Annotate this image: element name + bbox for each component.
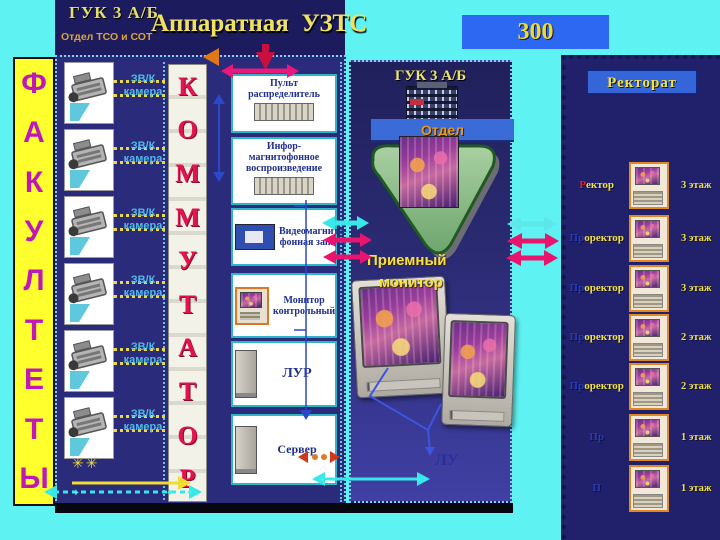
rectorate-row: Проректор 3 этаж (566, 215, 720, 261)
floor-label: 3 этаж (671, 180, 720, 191)
equipment-title: Видеомагнито-фонная запись (279, 226, 347, 248)
floor-label: 1 этаж (671, 483, 720, 494)
camera-box (64, 263, 114, 325)
equipment-box-pult: Пульт распределитель (231, 74, 337, 133)
kommutator-letter: Т (179, 292, 196, 318)
person-label: Проректор (566, 232, 627, 244)
faculties-letter: У (25, 217, 44, 247)
faculties-letter: Л (23, 266, 44, 296)
faculties-letter: К (25, 168, 43, 198)
photo-collage (399, 136, 459, 208)
computer-icon (629, 363, 669, 410)
tower-device-icon (235, 350, 257, 398)
camera-box (64, 196, 114, 258)
rectorate-title: Ректорат (587, 70, 697, 94)
camera-label: ЗВ/Ккамера (114, 207, 172, 233)
faculties-letter: Е (24, 365, 44, 395)
computer-icon (629, 314, 669, 361)
person-label: Пр (566, 431, 627, 443)
person-label: Проректор (566, 380, 627, 392)
computer-icon (629, 215, 669, 262)
guk-building-panel: ГУК 3 А/Б Отдел Приемный монитор ЛУ (349, 60, 512, 503)
video-camera-icon (65, 398, 115, 460)
kommutator-letter: М (175, 161, 200, 187)
camera-label: ЗВ/Ккамера (114, 408, 172, 434)
camera-box (64, 330, 114, 392)
reception-monitor-label: монитор (379, 274, 443, 291)
kommutator-letter: Р (180, 466, 196, 492)
person-label: Проректор (566, 331, 627, 343)
camera-box (64, 62, 114, 124)
camera-label: ЗВ/Ккамера (114, 274, 172, 300)
slide: ГУК 3 А/Б Отдел ТСО и СОТ Аппаратная УЗТ… (0, 0, 720, 540)
floor-label: 3 этаж (671, 283, 720, 294)
rectorate-row: П 1 этаж (566, 465, 720, 511)
rectorate-row: Ректор 3 этаж (566, 162, 720, 208)
equipment-title: Пульт распределитель (235, 78, 333, 100)
camera-label: ЗВ/Ккамера (114, 341, 172, 367)
computer-icon (629, 265, 669, 312)
video-camera-icon (65, 264, 115, 326)
floor-label: 2 этаж (671, 332, 720, 343)
rectorate-panel: Ректорат Ректор 3 этаж Проректор 3 этаж … (561, 55, 720, 540)
control-monitor-icon (235, 287, 269, 325)
equipment-box-server: Сервер (231, 414, 337, 485)
equipment-box-playback: Инфор-магнитофонное воспроизведение (231, 137, 337, 205)
person-label: П (566, 482, 627, 494)
bottom-edge (55, 503, 513, 513)
computer-icon (629, 414, 669, 461)
vcr-device-icon (235, 224, 275, 250)
rectorate-row: Проректор 3 этаж (566, 265, 720, 311)
person-label: Ректор (566, 179, 627, 191)
guk-header-label: ГУК 3 А/Б (69, 3, 159, 23)
camera-label: ЗВ/Ккамера (114, 73, 172, 99)
tape-player-device-icon (254, 177, 314, 195)
floor-label: 1 этаж (671, 432, 720, 443)
video-camera-icon (65, 331, 115, 393)
equipment-title: Монитор контрольный (273, 295, 335, 317)
kommutator-letter: А (178, 335, 197, 361)
kommutator-letter: Т (179, 379, 196, 405)
video-camera-icon (65, 197, 115, 259)
computer-icon (629, 162, 669, 209)
faculties-letter: Ф (21, 69, 47, 99)
faculties-letter: Т (25, 415, 43, 445)
faculties-letter: Т (25, 316, 43, 346)
faculties-letter: Ы (19, 464, 48, 494)
divider-dotline (340, 62, 342, 502)
apparatus-panel: ЗВ/Ккамера ЗВ/Ккамера ЗВ/Ккамера ЗВ/Ккам… (55, 55, 346, 505)
equipment-box-recording: Видеомагнито-фонная запись (231, 208, 337, 266)
kommutator-strip: К О М М У Т А Т О Р (168, 64, 207, 502)
server-tower-icon (235, 426, 257, 474)
magenta-double-arrow (507, 233, 559, 249)
kommutator-letter: О (177, 423, 197, 449)
equipment-title: Инфор-магнитофонное воспроизведение (235, 141, 333, 174)
faculties-strip: Ф А К У Л Т Е Т Ы (13, 57, 55, 506)
equipment-box-lur: ЛУР (231, 341, 337, 407)
lu-label: ЛУ (435, 452, 459, 470)
badge-300: 300 (462, 15, 609, 49)
camera-box (64, 397, 114, 459)
kommutator-letter: У (178, 248, 197, 274)
header-block: ГУК 3 А/Б Отдел ТСО и СОТ Аппаратная УЗТ… (55, 0, 345, 57)
video-camera-icon (65, 63, 115, 125)
camera-label: ЗВ/Ккамера (114, 140, 172, 166)
equipment-box-monitor: Монитор контрольный (231, 273, 337, 338)
rectorate-row: Пр 1 этаж (566, 414, 720, 460)
cyan-double-arrow (507, 217, 557, 231)
dept-label: Отдел ТСО и СОТ (61, 31, 152, 43)
faculties-letter: А (23, 118, 45, 148)
person-label: Проректор (566, 282, 627, 294)
floor-label: 3 этаж (671, 233, 720, 244)
reception-monitor-label: Приемный (367, 252, 447, 269)
page-title: Аппаратная УЗТС (151, 10, 367, 38)
video-camera-icon (65, 130, 115, 192)
kommutator-letter: К (178, 74, 197, 100)
floor-label: 2 этаж (671, 381, 720, 392)
magenta-double-arrow (506, 250, 558, 266)
computer-icon (629, 465, 669, 512)
camera-box (64, 129, 114, 191)
kommutator-letter: О (177, 117, 197, 143)
yellow-stars-decor: ✳✳ (72, 455, 99, 472)
rectorate-row: Проректор 2 этаж (566, 314, 720, 360)
rectorate-row: Проректор 2 этаж (566, 363, 720, 409)
kommutator-letter: М (175, 205, 200, 231)
tv-monitor (351, 276, 451, 399)
equipment-title: ЛУР (261, 366, 333, 382)
tv-monitor (441, 313, 516, 427)
distributor-device-icon (254, 103, 314, 121)
equipment-title: Сервер (261, 442, 333, 457)
